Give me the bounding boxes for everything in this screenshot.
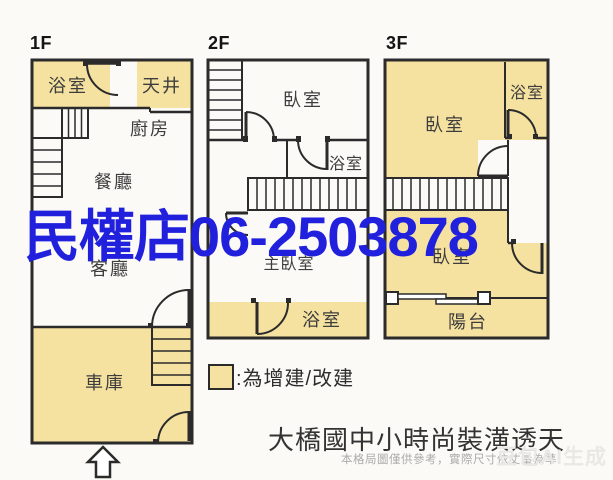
- floor-label-1f: 1F: [30, 33, 52, 54]
- room-label-2f-bathroom-mid: 浴室: [329, 150, 363, 174]
- room-label-1f-patio: 天井: [142, 72, 182, 98]
- phone-watermark: 民權店06-2503878: [24, 192, 613, 273]
- legend: :為增建/改建: [208, 362, 354, 391]
- legend-swatch: [208, 364, 234, 390]
- floor-label-2f: 2F: [208, 33, 230, 54]
- floor-label-3f: 3F: [386, 33, 408, 54]
- room-label-3f-bathroom: 浴室: [510, 79, 544, 103]
- room-label-1f-dining: 餐廳: [94, 168, 134, 194]
- ai-watermark: 豆包AI生成: [496, 441, 607, 471]
- room-label-1f-bathroom: 浴室: [48, 72, 88, 98]
- legend-label: :為增建/改建: [236, 362, 354, 391]
- room-label-3f-balcony: 陽台: [448, 308, 488, 334]
- room-label-1f-kitchen: 廚房: [130, 115, 170, 141]
- room-label-3f-bedroom1: 臥室: [425, 111, 465, 137]
- room-label-2f-bathroom-bottom: 浴室: [302, 306, 342, 332]
- room-label-1f-garage: 車庫: [85, 369, 125, 395]
- room-label-2f-bedroom: 臥室: [283, 86, 323, 112]
- floorplan-image: 1F: [0, 0, 613, 480]
- entrance-arrow-icon: [88, 447, 118, 477]
